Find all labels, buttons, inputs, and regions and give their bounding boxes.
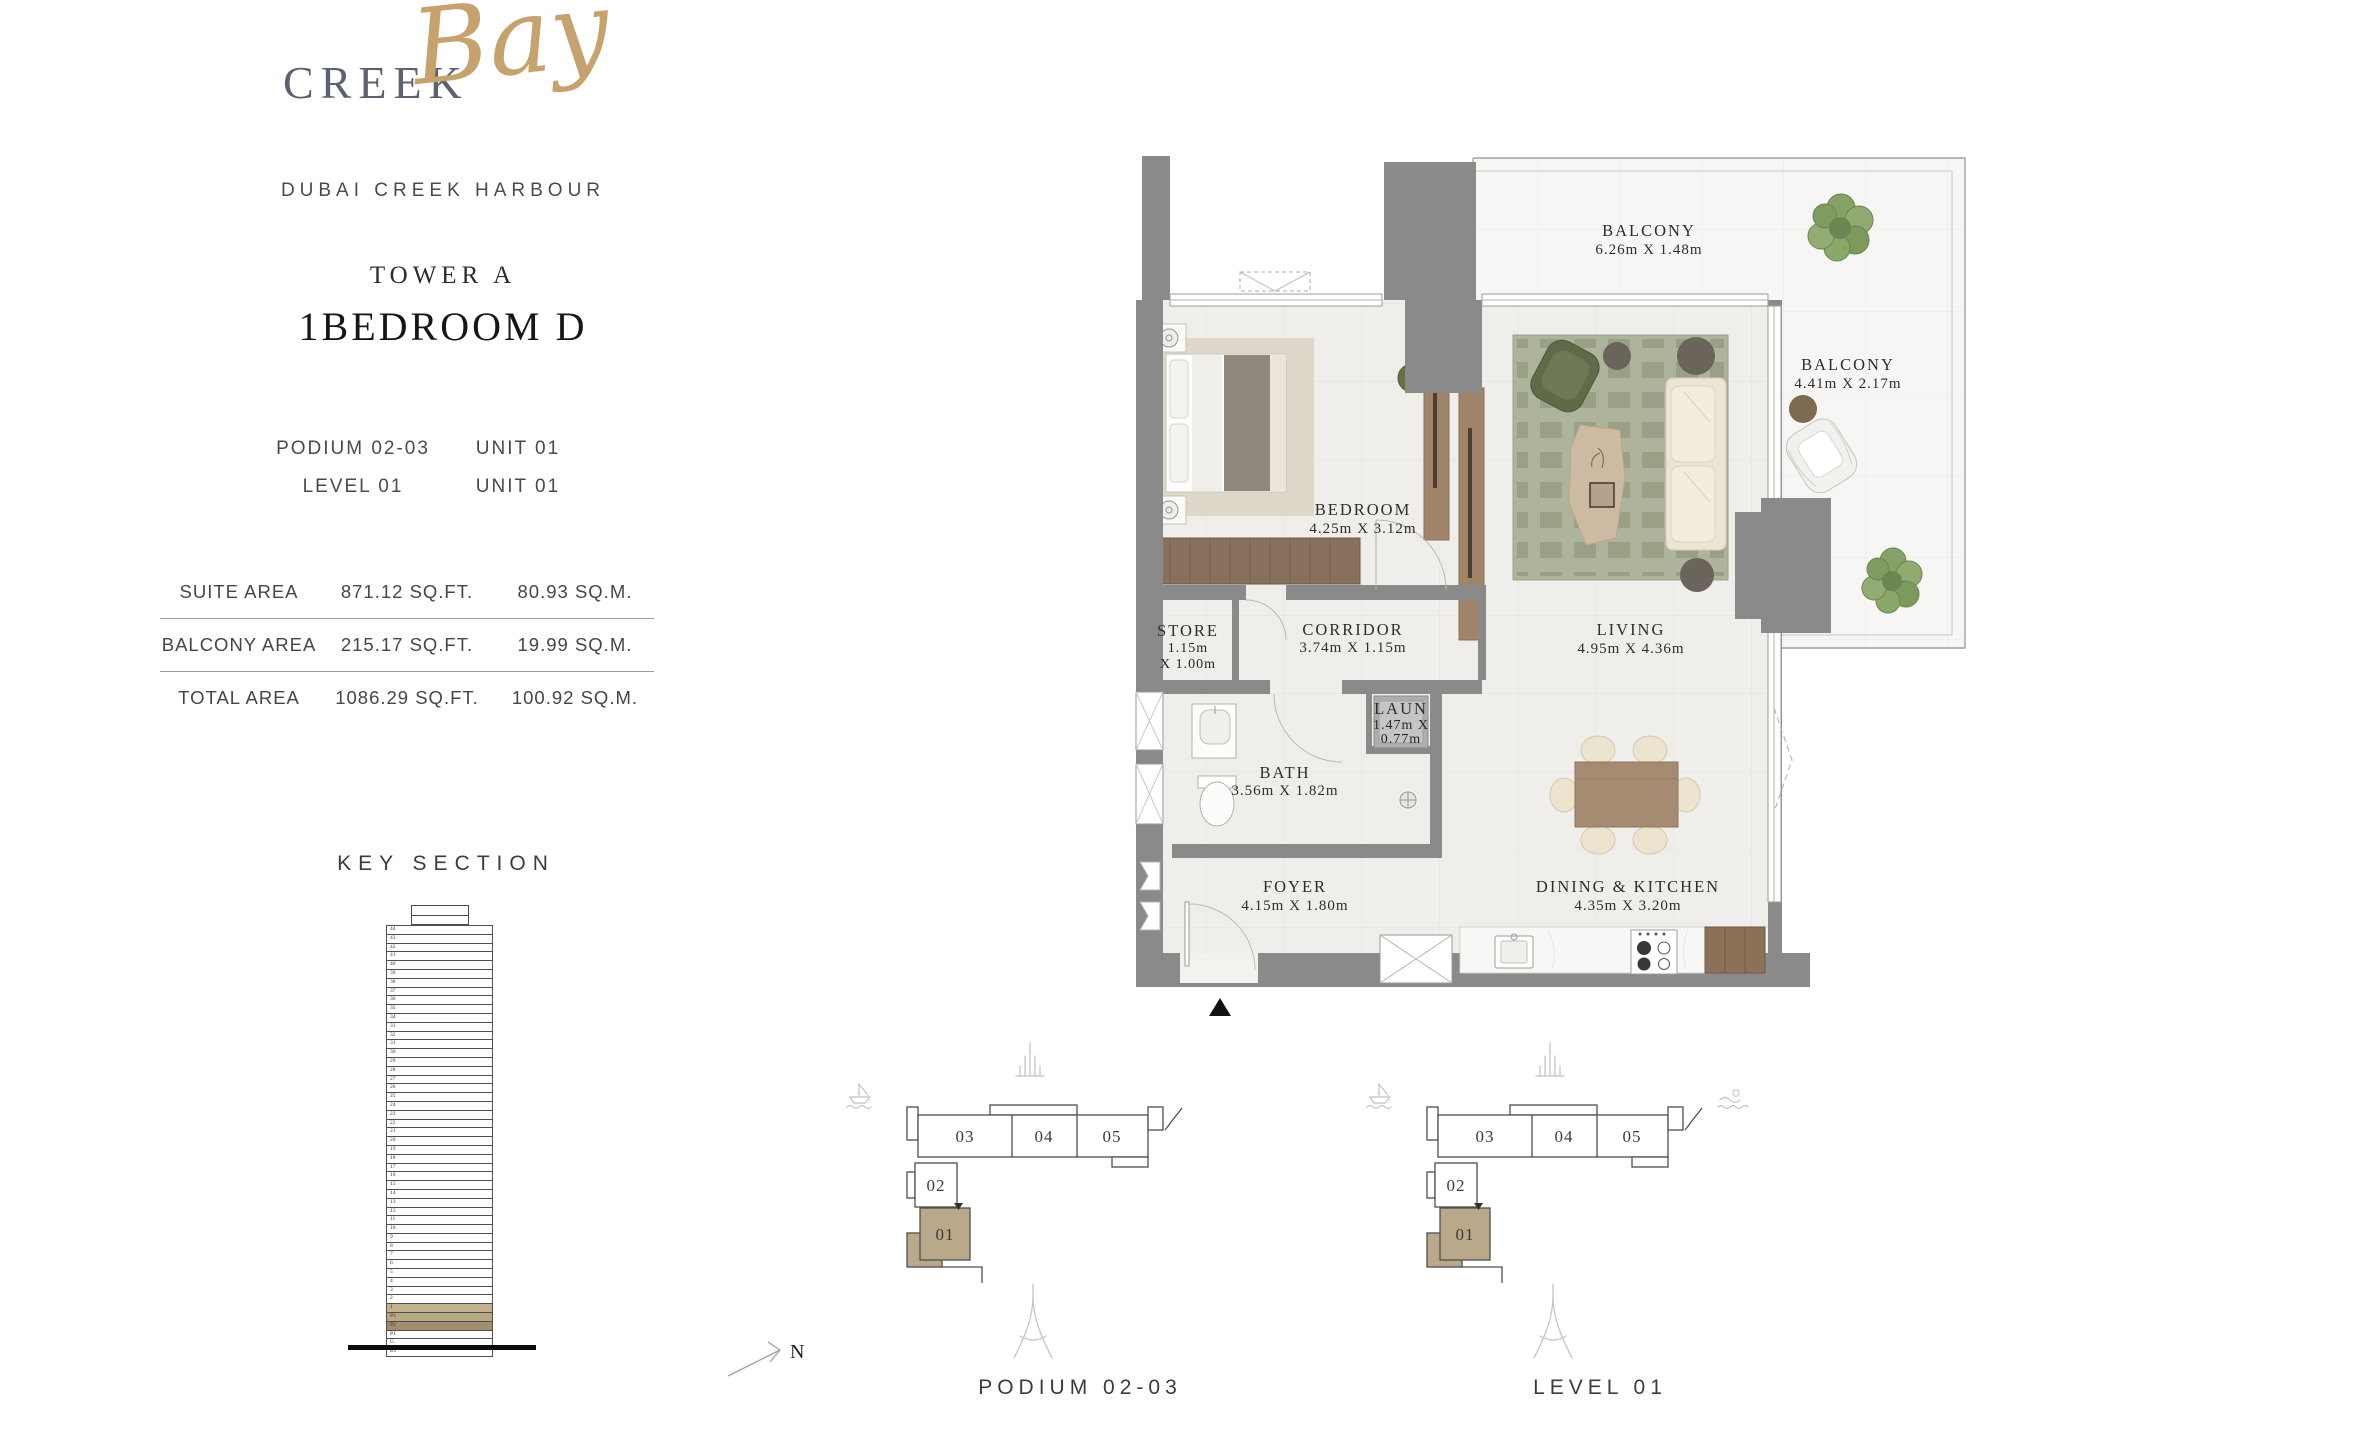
key-section-floor-9: 9 (386, 1234, 493, 1243)
area-sqm: 100.92 SQ.M. (496, 687, 654, 709)
toilet (1198, 776, 1236, 826)
bath-vanity (1192, 704, 1236, 758)
key-section-floor-P1: P1 (386, 1331, 493, 1340)
key-section-floor-18: 18 (386, 1155, 493, 1164)
keyplan-podium: 03 04 05 02 01 (830, 1040, 1330, 1420)
key-section-floor-7: 7 (386, 1251, 493, 1260)
key-section-floor-23: 23 (386, 1111, 493, 1120)
key-section-floor-1: 1 (386, 1304, 493, 1313)
area-label: TOTAL AREA (160, 687, 318, 709)
key-section-floor-12: 12 (386, 1208, 493, 1217)
floor-plan: BALCONY 6.26m X 1.48m BALCONY 4.41m X 2.… (1128, 148, 1973, 1028)
key-section-floor-39: 39 (386, 970, 493, 979)
spire-tower-icon (1534, 1284, 1572, 1358)
elevator-shaft (1380, 935, 1452, 983)
area-sqm: 80.93 SQ.M. (496, 581, 654, 603)
keyplan-podium-caption: PODIUM 02-03 (830, 1376, 1330, 1400)
keyplan-unit-02: 02 (1447, 1176, 1466, 1195)
key-section-floors: 4443424140393837363534333231302928272625… (386, 925, 493, 1357)
room-label-corridor: CORRIDOR (1302, 620, 1403, 639)
room-dims-store-1: 1.15m (1168, 641, 1208, 656)
key-section-floor-32: 32 (386, 1032, 493, 1041)
room-label-dining: DINING & KITCHEN (1536, 877, 1720, 896)
key-section-floor-19: 19 (386, 1146, 493, 1155)
stove (1631, 930, 1677, 974)
key-section-floor-6: 6 (386, 1260, 493, 1269)
burj-khalifa-icon (1536, 1043, 1564, 1076)
key-section-floor-43: 43 (386, 935, 493, 944)
area-label: BALCONY AREA (160, 634, 318, 656)
key-section-floor-21: 21 (386, 1128, 493, 1137)
tower-label: TOWER A (243, 262, 643, 290)
key-section-floor-33: 33 (386, 1023, 493, 1032)
brochure-page: CREEK Bay DUBAI CREEK HARBOUR TOWER A 1B… (0, 0, 2364, 1446)
key-section-floor-42: 42 (386, 944, 493, 953)
room-label-foyer: FOYER (1263, 877, 1327, 896)
spire-tower-icon (1014, 1284, 1052, 1358)
key-section-floor-24: 24 (386, 1102, 493, 1111)
room-dims-laundry-2: 0.77m (1381, 732, 1421, 747)
room-label-balcony-side: BALCONY (1801, 355, 1895, 374)
key-section-floor-37: 37 (386, 988, 493, 997)
logo-bay-script: Bay (407, 0, 614, 100)
keyplan-unit-05: 05 (1623, 1127, 1642, 1146)
key-section-floor-22: 22 (386, 1120, 493, 1129)
area-row-suite: SUITE AREA 871.12 SQ.FT. 80.93 SQ.M. (160, 566, 654, 618)
north-arrow-icon: N (724, 1334, 824, 1390)
area-row-balcony: BALCONY AREA 215.17 SQ.FT. 19.99 SQ.M. (160, 618, 654, 671)
key-section-floor-11: 11 (386, 1216, 493, 1225)
room-dims-corridor: 3.74m X 1.15m (1299, 640, 1406, 656)
key-section-floor-2: 2 (386, 1295, 493, 1304)
boat-icon (847, 1084, 871, 1109)
dining-table (1575, 762, 1678, 827)
boat-icon (1367, 1084, 1391, 1109)
pouf-3 (1680, 558, 1714, 592)
room-dims-living: 4.95m X 4.36m (1577, 641, 1684, 657)
room-dims-bedroom: 4.25m X 3.12m (1309, 521, 1416, 537)
room-dims-bath: 3.56m X 1.82m (1231, 783, 1338, 799)
room-dims-laundry-1: 1.47m X (1373, 718, 1429, 733)
tower-roof (411, 905, 469, 925)
room-label-bath: BATH (1259, 763, 1310, 782)
key-section-tower: 4443424140393837363534333231302928272625… (386, 905, 493, 1357)
key-section-floor-34: 34 (386, 1014, 493, 1023)
key-section-floor-10: 10 (386, 1225, 493, 1234)
area-sqm: 19.99 SQ.M. (496, 634, 654, 656)
keyplan-level-caption: LEVEL 01 (1350, 1376, 1850, 1400)
balcony-pouf (1789, 395, 1817, 423)
room-dims-balcony-top: 6.26m X 1.48m (1595, 242, 1702, 258)
keyplan-level: 03 04 05 02 01 (1350, 1040, 1850, 1420)
key-section-floor-31: 31 (386, 1040, 493, 1049)
keyplan-unit-03: 03 (1476, 1127, 1495, 1146)
key-section-floor-3: 3 (386, 1287, 493, 1296)
swimmer-icon (1718, 1090, 1748, 1109)
key-section-floor-30: 30 (386, 1049, 493, 1058)
room-label-living: LIVING (1597, 620, 1666, 639)
ground-line (348, 1345, 536, 1350)
key-section-floor-26: 26 (386, 1084, 493, 1093)
area-row-total: TOTAL AREA 1086.29 SQ.FT. 100.92 SQ.M. (160, 671, 654, 724)
logo-subtitle: DUBAI CREEK HARBOUR (203, 180, 683, 202)
key-section-floor-27: 27 (386, 1076, 493, 1085)
location-unit-2: UNIT 01 (433, 476, 603, 498)
area-sqft: 1086.29 SQ.FT. (318, 687, 496, 709)
pouf-2 (1677, 337, 1715, 375)
area-table: SUITE AREA 871.12 SQ.FT. 80.93 SQ.M. BAL… (160, 566, 654, 724)
key-section-floor-13: 13 (386, 1199, 493, 1208)
keyplan-unit-01: 01 (936, 1225, 955, 1244)
key-section-title: KEY SECTION (296, 852, 596, 876)
key-section-floor-P3: P3 (386, 1313, 493, 1322)
room-dims-dining: 4.35m X 3.20m (1574, 898, 1681, 914)
entry-marker-triangle (1209, 998, 1231, 1016)
key-section-floor-40: 40 (386, 961, 493, 970)
burj-khalifa-icon (1016, 1043, 1044, 1076)
key-section-floor-28: 28 (386, 1067, 493, 1076)
key-section-floor-P2: P2 (386, 1322, 493, 1331)
key-section-floor-16: 16 (386, 1172, 493, 1181)
area-label: SUITE AREA (160, 581, 318, 603)
keyplan-unit-01: 01 (1456, 1225, 1475, 1244)
room-dims-balcony-side: 4.41m X 2.17m (1794, 376, 1901, 392)
key-section-floor-8: 8 (386, 1243, 493, 1252)
location-unit-1: UNIT 01 (433, 438, 603, 460)
room-label-bedroom: BEDROOM (1315, 500, 1412, 519)
room-dims-store-2: X 1.00m (1160, 657, 1216, 672)
room-dims-foyer: 4.15m X 1.80m (1241, 898, 1348, 914)
key-section-floor-5: 5 (386, 1269, 493, 1278)
bed (1166, 354, 1286, 492)
room-label-balcony-top: BALCONY (1602, 221, 1696, 240)
key-section-floor-20: 20 (386, 1137, 493, 1146)
sofa (1666, 378, 1726, 550)
key-section-floor-17: 17 (386, 1164, 493, 1173)
area-sqft: 871.12 SQ.FT. (318, 581, 496, 603)
key-section-floor-44: 44 (386, 926, 493, 935)
wardrobe (1150, 538, 1360, 584)
key-section-floor-25: 25 (386, 1093, 493, 1102)
key-section-floor-38: 38 (386, 979, 493, 988)
pouf-1 (1603, 342, 1631, 370)
room-label-store: STORE (1157, 621, 1219, 640)
keyplan-unit-05: 05 (1103, 1127, 1122, 1146)
key-section-floor-36: 36 (386, 996, 493, 1005)
keyplan-unit-04: 04 (1035, 1127, 1054, 1146)
key-section-floor-15: 15 (386, 1181, 493, 1190)
key-section-floor-14: 14 (386, 1190, 493, 1199)
room-label-laundry: LAUN (1374, 699, 1428, 718)
key-section-floor-4: 4 (386, 1278, 493, 1287)
keyplan-unit-04: 04 (1555, 1127, 1574, 1146)
unit-type-title: 1BEDROOM D (203, 303, 683, 350)
key-section-floor-29: 29 (386, 1058, 493, 1067)
north-label: N (790, 1341, 804, 1363)
area-sqft: 215.17 SQ.FT. (318, 634, 496, 656)
kitchen-cabinet (1705, 927, 1765, 973)
key-section-floor-41: 41 (386, 952, 493, 961)
shower-head (1400, 792, 1416, 808)
keyplan-unit-02: 02 (927, 1176, 946, 1195)
key-section-floor-35: 35 (386, 1005, 493, 1014)
keyplan-unit-03: 03 (956, 1127, 975, 1146)
